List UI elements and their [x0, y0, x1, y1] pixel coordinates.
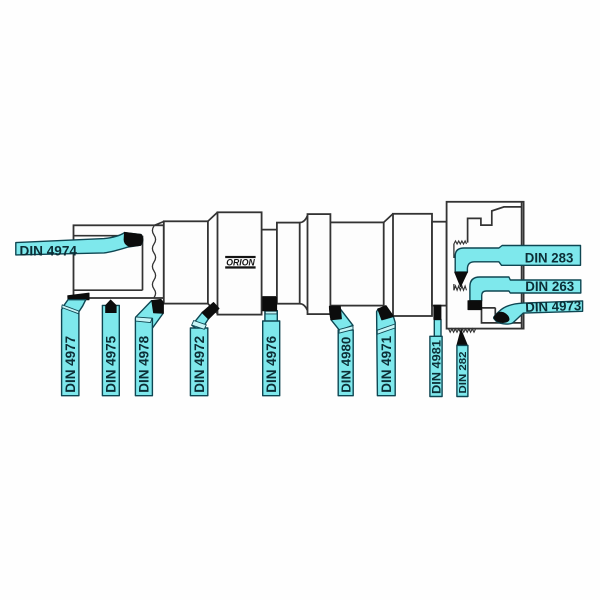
svg-text:DIN 283: DIN 283 [525, 249, 574, 265]
svg-text:DIN 4978: DIN 4978 [137, 335, 152, 392]
svg-text:DIN 4980: DIN 4980 [338, 337, 353, 393]
svg-text:DIN 4975: DIN 4975 [104, 335, 119, 392]
svg-text:DIN 4971: DIN 4971 [379, 335, 394, 392]
svg-text:DIN 4977: DIN 4977 [63, 336, 78, 393]
svg-text:DIN 4974: DIN 4974 [20, 243, 78, 258]
svg-text:DIN 4973: DIN 4973 [525, 298, 582, 315]
svg-text:DIN 282: DIN 282 [457, 351, 469, 393]
svg-text:DIN 4981: DIN 4981 [432, 339, 444, 394]
svg-text:DIN 263: DIN 263 [525, 278, 574, 294]
svg-text:DIN 4972: DIN 4972 [192, 336, 207, 393]
svg-text:DIN 4976: DIN 4976 [264, 335, 279, 392]
